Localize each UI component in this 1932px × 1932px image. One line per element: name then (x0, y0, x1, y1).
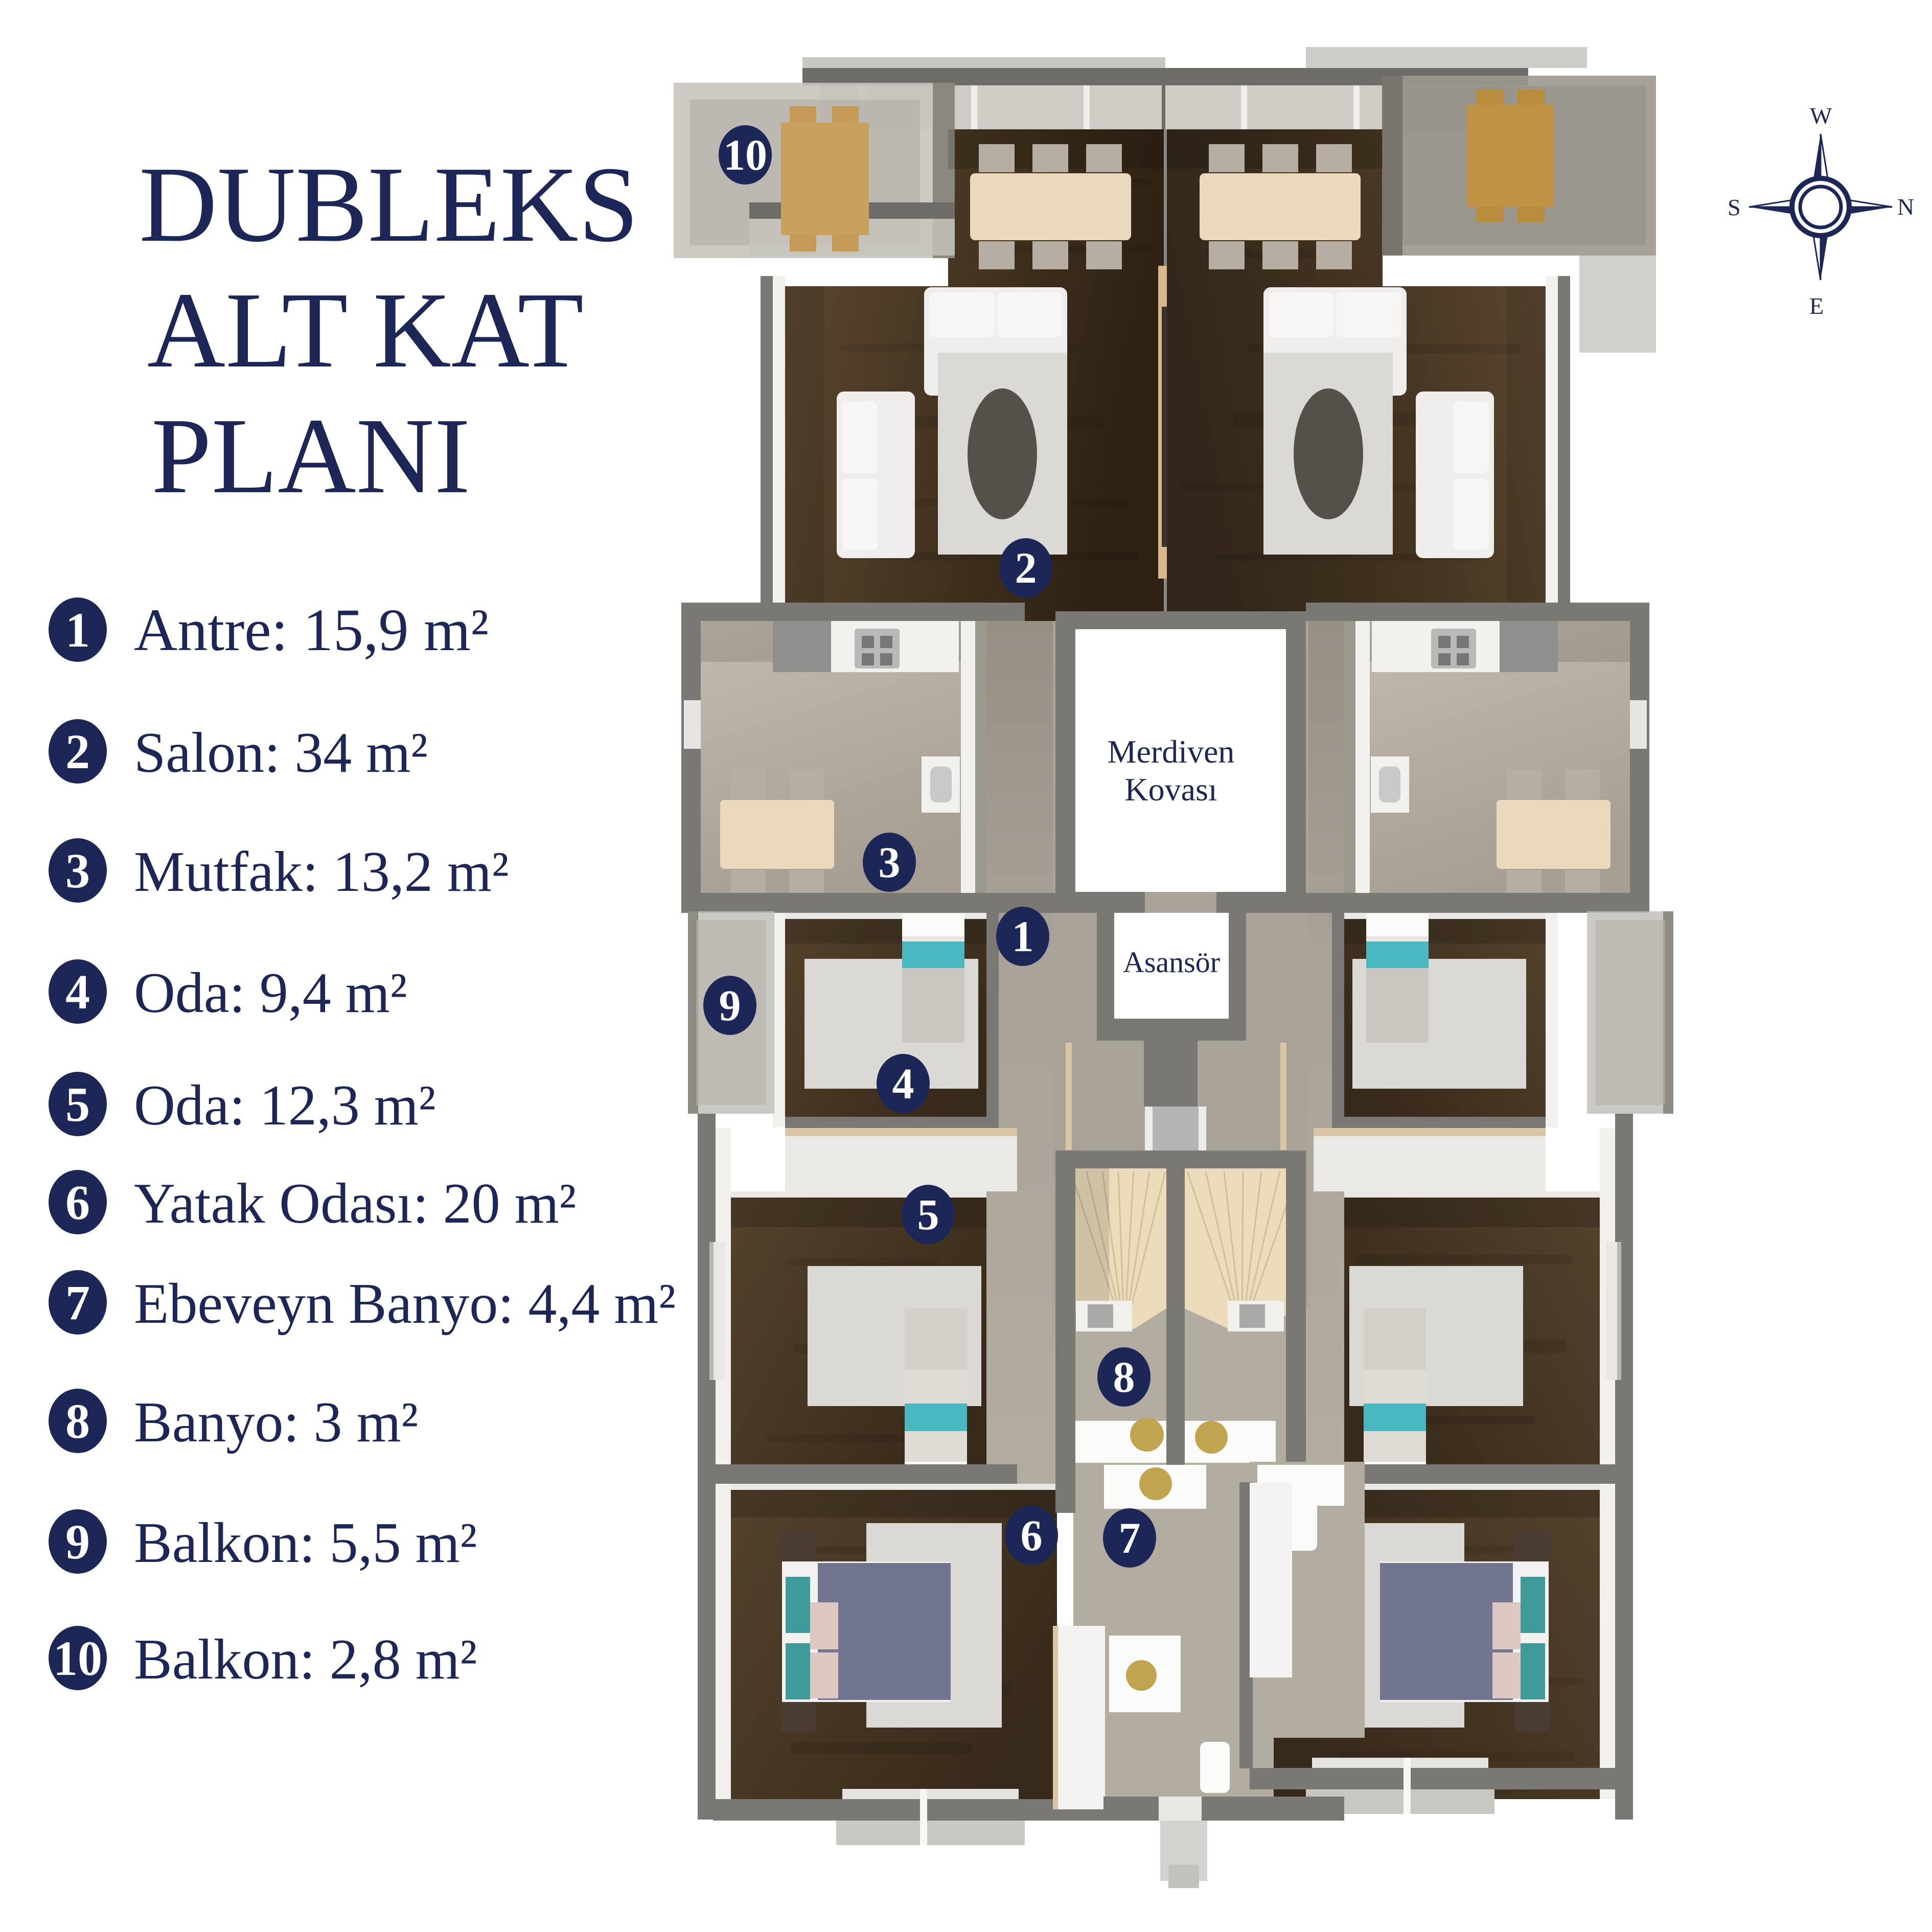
svg-text:8: 8 (1113, 1352, 1135, 1401)
svg-text:DUBLEKS: DUBLEKS (139, 144, 639, 264)
svg-text:Balkon: 5,5 m²: Balkon: 5,5 m² (134, 1511, 477, 1575)
svg-text:Oda: 12,3 m²: Oda: 12,3 m² (134, 1074, 435, 1137)
svg-text:9: 9 (719, 981, 741, 1030)
svg-text:2: 2 (65, 724, 90, 779)
svg-text:N: N (1897, 194, 1914, 220)
svg-text:Kovası: Kovası (1124, 771, 1217, 808)
svg-text:Yatak Odası: 20 m²: Yatak Odası: 20 m² (134, 1172, 576, 1235)
svg-text:2: 2 (1015, 543, 1037, 592)
svg-text:9: 9 (65, 1514, 90, 1569)
svg-text:Ebeveyn Banyo: 4,4 m²: Ebeveyn Banyo: 4,4 m² (134, 1272, 676, 1336)
svg-text:4: 4 (65, 964, 90, 1019)
svg-text:6: 6 (1021, 1511, 1043, 1560)
svg-text:Asansör: Asansör (1123, 946, 1220, 979)
svg-text:7: 7 (65, 1275, 90, 1330)
svg-text:W: W (1810, 103, 1832, 129)
svg-text:Antre: 15,9 m²: Antre: 15,9 m² (134, 596, 489, 663)
svg-text:E: E (1809, 293, 1824, 319)
svg-text:S: S (1728, 194, 1741, 220)
svg-text:ALT KAT: ALT KAT (147, 270, 584, 390)
svg-text:1: 1 (1012, 912, 1034, 961)
svg-text:6: 6 (65, 1175, 90, 1230)
svg-text:Mutfak: 13,2 m²: Mutfak: 13,2 m² (134, 840, 509, 904)
svg-text:Oda: 9,4 m²: Oda: 9,4 m² (134, 961, 407, 1025)
svg-text:Salon: 34 m²: Salon: 34 m² (134, 721, 428, 785)
svg-text:4: 4 (892, 1059, 914, 1108)
svg-text:Merdiven: Merdiven (1108, 733, 1235, 770)
svg-text:7: 7 (1119, 1513, 1141, 1562)
svg-text:8: 8 (65, 1394, 90, 1448)
svg-text:3: 3 (879, 838, 901, 887)
svg-text:10: 10 (723, 130, 767, 179)
svg-text:10: 10 (53, 1631, 102, 1686)
svg-text:Banyo: 3 m²: Banyo: 3 m² (134, 1391, 418, 1454)
svg-text:1: 1 (65, 603, 90, 657)
svg-text:5: 5 (65, 1077, 90, 1132)
svg-text:3: 3 (65, 843, 90, 898)
svg-text:5: 5 (917, 1190, 939, 1239)
svg-text:Balkon: 2,8 m²: Balkon: 2,8 m² (134, 1628, 477, 1691)
svg-text:PLANI: PLANI (151, 396, 470, 516)
